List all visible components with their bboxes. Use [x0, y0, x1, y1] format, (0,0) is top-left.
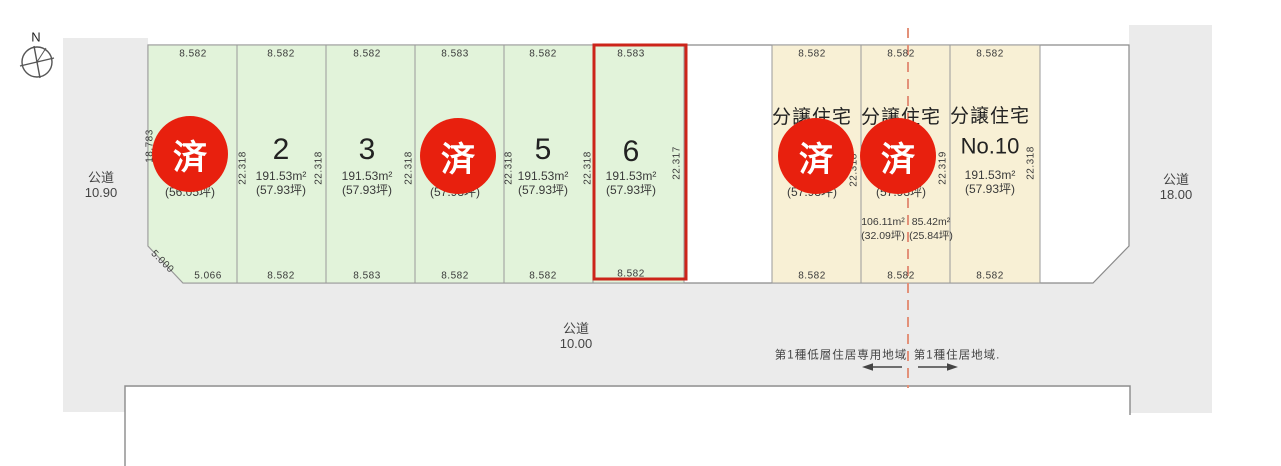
- road-bottom-name: 公道: [560, 322, 593, 337]
- zoning-right-label: 第1種住居地域.: [914, 349, 1001, 362]
- road-left-name: 公道: [85, 171, 118, 186]
- plot3-right-side-dim: 22.318: [403, 151, 415, 185]
- road-left-label: 公道 10.90: [85, 171, 118, 201]
- diagram-shapes: [0, 0, 1281, 466]
- plot1-bottom-dim: 5.066: [194, 270, 222, 282]
- road-right-name: 公道: [1160, 173, 1193, 188]
- plot1-sold-stamp: 済: [152, 116, 228, 192]
- plot2-area-tsubo: (57.93坪): [256, 184, 306, 198]
- plot10-area-m2: 191.53m²: [965, 169, 1016, 183]
- plot6-area-m2: 191.53m²: [606, 170, 657, 184]
- plot1-top-dim: 8.582: [179, 48, 207, 60]
- plot10-top-dim: 8.582: [976, 48, 1004, 60]
- plot2-number: 2: [273, 133, 290, 168]
- plot3-area-m2: 191.53m²: [342, 170, 393, 184]
- plot4-bottom-dim: 8.582: [441, 270, 469, 282]
- plot9-subright-area-tsubo: (25.84坪): [909, 230, 953, 242]
- bottom-block-outline: [125, 386, 1130, 466]
- road-bottom-label: 公道 10.00: [560, 322, 593, 352]
- road-bottom-width: 10.00: [560, 337, 593, 352]
- plot9-right-side-dim: 22.319: [937, 151, 949, 185]
- plot5-area-m2: 191.53m²: [518, 170, 569, 184]
- road-left-width: 10.90: [85, 186, 118, 201]
- plot5-number: 5: [535, 133, 552, 168]
- plot4-sold-stamp-label: 済: [441, 132, 475, 181]
- plot9-subleft-area-m2: 106.11m²: [861, 216, 905, 228]
- plot3-bottom-dim: 8.583: [353, 270, 381, 282]
- plot4-right-side-dim: 22.318: [503, 151, 515, 185]
- plot9-subright-area-m2: 85.42m²: [912, 216, 951, 228]
- plot8-bottom-dim: 8.582: [798, 270, 826, 282]
- plot2-top-dim: 8.582: [267, 48, 295, 60]
- plot9-top-dim: 8.582: [887, 48, 915, 60]
- green-plots-region: [148, 45, 684, 283]
- plot9-sold-stamp: 済: [860, 118, 936, 194]
- compass-icon: [20, 46, 54, 78]
- plot6-area-tsubo: (57.93坪): [606, 184, 656, 198]
- plot10-title: 分譲住宅: [950, 106, 1030, 128]
- plot6-top-dim: 8.583: [617, 48, 645, 60]
- compass-north-label: N: [31, 31, 40, 46]
- plot10-area-tsubo: (57.93坪): [965, 183, 1015, 197]
- plot1-sold-stamp-label: 済: [173, 130, 207, 179]
- zoning-left-label: 第1種低層住居専用地域: [775, 349, 907, 362]
- plot10-right-side-dim: 22.318: [1025, 146, 1037, 180]
- plot8-top-dim: 8.582: [798, 48, 826, 60]
- plot8-sold-stamp-label: 済: [799, 132, 833, 181]
- plot2-left-side-dim: 22.318: [237, 151, 249, 185]
- plot6-bottom-dim: 8.582: [617, 268, 645, 280]
- plot2-area-m2: 191.53m²: [256, 170, 307, 184]
- plot5-bottom-dim: 8.582: [529, 270, 557, 282]
- road-right-label: 公道 18.00: [1160, 173, 1193, 203]
- plot5-area-tsubo: (57.93坪): [518, 184, 568, 198]
- plot5-top-dim: 8.582: [529, 48, 557, 60]
- plot10-number: No.10: [961, 133, 1020, 158]
- plot2-bottom-dim: 8.582: [267, 270, 295, 282]
- plot10-bottom-dim: 8.582: [976, 270, 1004, 282]
- plot5-right-side-dim: 22.318: [582, 151, 594, 185]
- plot9-bottom-dim: 8.582: [887, 270, 915, 282]
- lot-layout-diagram: N 公道 10.90 公道 10.00 公道 18.00 8.582 8.582…: [0, 0, 1281, 466]
- plot2-right-side-dim: 22.318: [313, 151, 325, 185]
- road-right-width: 18.00: [1160, 188, 1193, 203]
- plot3-top-dim: 8.582: [353, 48, 381, 60]
- plot6-right-side-dim: 22.317: [671, 146, 683, 180]
- plot8-sold-stamp: 済: [778, 118, 854, 194]
- plot3-area-tsubo: (57.93坪): [342, 184, 392, 198]
- plot4-sold-stamp: 済: [420, 118, 496, 194]
- plot4-top-dim: 8.583: [441, 48, 469, 60]
- plot9-sold-stamp-label: 済: [881, 132, 915, 181]
- plot6-number: 6: [623, 135, 640, 170]
- plot9-subleft-area-tsubo: (32.09坪): [861, 230, 905, 242]
- plot3-number: 3: [359, 133, 376, 168]
